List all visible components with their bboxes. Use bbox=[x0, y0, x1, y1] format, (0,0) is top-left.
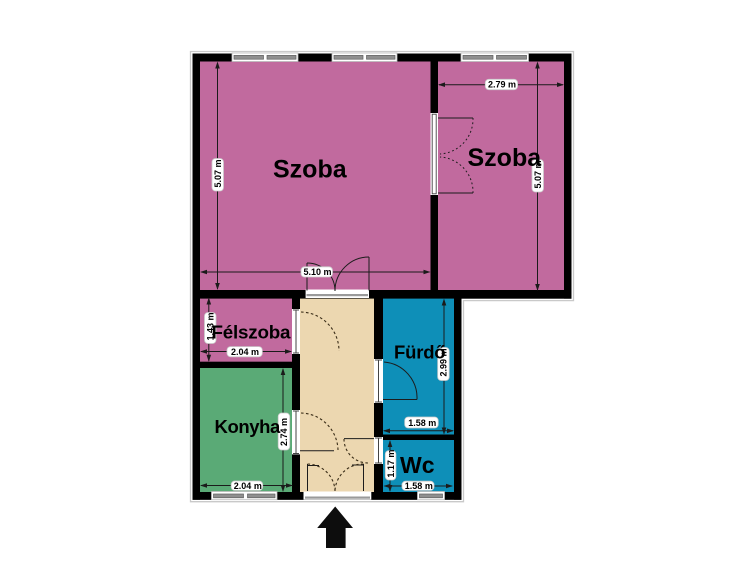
svg-text:5.07 m: 5.07 m bbox=[213, 159, 223, 187]
svg-text:Konyha: Konyha bbox=[215, 416, 282, 437]
svg-text:2.79 m: 2.79 m bbox=[488, 80, 516, 90]
svg-text:Fürdő: Fürdő bbox=[394, 342, 445, 363]
svg-text:2.04 m: 2.04 m bbox=[234, 481, 262, 491]
svg-text:1.58 m: 1.58 m bbox=[408, 418, 436, 428]
svg-text:Wc: Wc bbox=[400, 452, 435, 478]
svg-text:Szoba: Szoba bbox=[273, 156, 348, 184]
svg-text:2.04 m: 2.04 m bbox=[231, 347, 259, 357]
svg-text:2.74 m: 2.74 m bbox=[279, 418, 289, 446]
svg-text:5.10 m: 5.10 m bbox=[304, 267, 332, 277]
svg-text:1.58 m: 1.58 m bbox=[405, 481, 433, 491]
svg-text:Szoba: Szoba bbox=[468, 144, 543, 172]
svg-text:1.17 m: 1.17 m bbox=[386, 450, 396, 478]
svg-text:Félszoba: Félszoba bbox=[212, 322, 292, 343]
